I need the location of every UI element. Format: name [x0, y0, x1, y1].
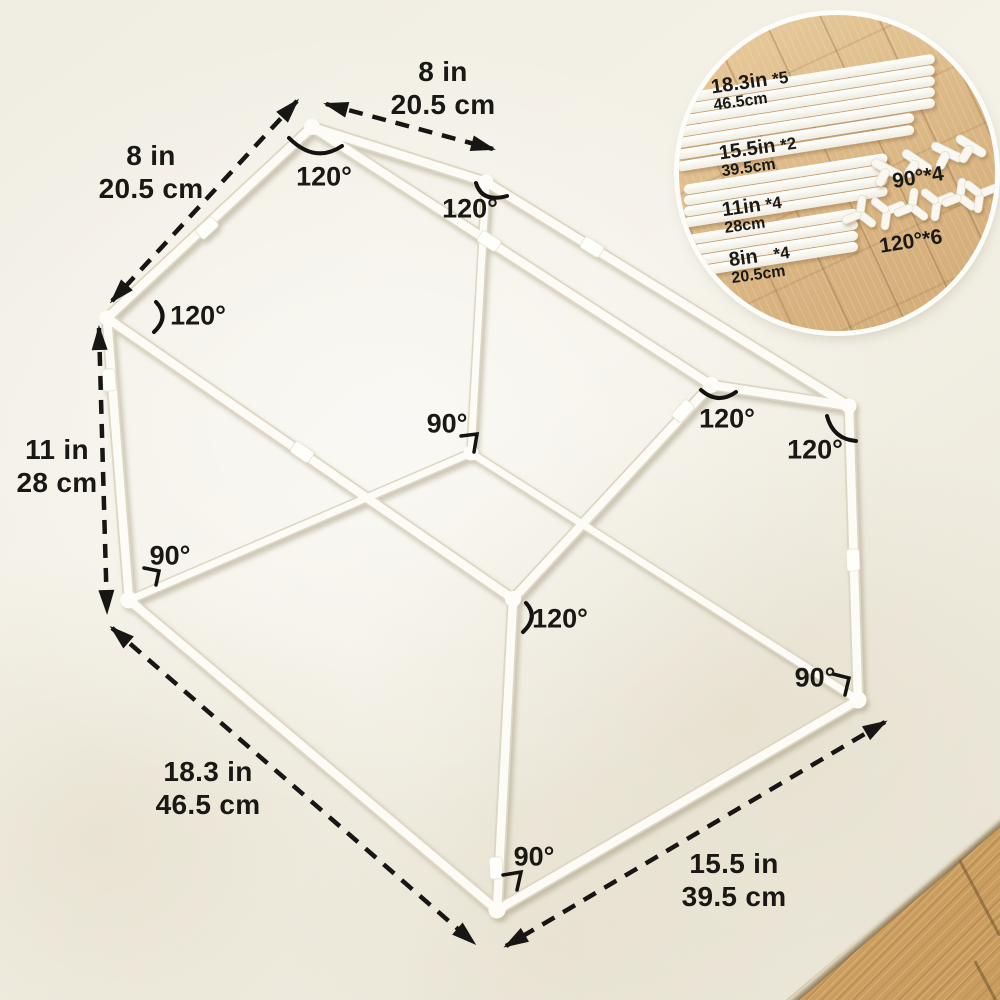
- dim-imperial: 15.5 in: [682, 847, 787, 880]
- part-qty: *4: [764, 193, 783, 214]
- dim-imperial: 8 in: [391, 55, 496, 88]
- angle-label-back-gable-peak: 120°: [296, 162, 352, 193]
- part-label-pipe-8: 8in*4 20.5cm: [728, 242, 794, 288]
- angle-label-front-eave: 120°: [532, 604, 588, 635]
- dim-wall-height: 11 in 28 cm: [17, 433, 98, 499]
- dim-imperial: 18.3 in: [156, 755, 261, 788]
- part-qty: *5: [771, 68, 790, 89]
- dim-metric: 39.5 cm: [682, 880, 787, 913]
- dim-metric: 20.5 cm: [99, 172, 204, 205]
- angle-label-back-floor-corner: 90°: [427, 409, 468, 440]
- product-diagram: 8 in 20.5 cm 8 in 20.5 cm 11 in 28 cm 18…: [0, 0, 1000, 1000]
- dim-base-width: 15.5 in 39.5 cm: [682, 847, 787, 913]
- dim-imperial: 8 in: [99, 139, 204, 172]
- part-qty: *2: [779, 134, 798, 155]
- dim-roof-left-slope: 8 in 20.5 cm: [99, 139, 204, 205]
- wye-connector-icon: [961, 170, 995, 216]
- part-qty: *4: [772, 243, 791, 264]
- angle-label-front-floor-corner: 90°: [514, 842, 555, 873]
- angle-label-right-floor-corner: 90°: [795, 663, 836, 694]
- angle-label-back-left-eave: 120°: [170, 301, 226, 332]
- angle-label-left-floor-corner: 90°: [150, 541, 191, 572]
- dim-roof-right-slope: 8 in 20.5 cm: [391, 55, 496, 121]
- angle-label-back-right-eave: 120°: [442, 194, 498, 225]
- dim-imperial: 11 in: [17, 433, 98, 466]
- dim-metric: 20.5 cm: [391, 88, 496, 121]
- dim-base-length: 18.3 in 46.5 cm: [156, 755, 261, 821]
- dim-metric: 28 cm: [17, 466, 98, 499]
- angle-label-right-eave: 120°: [787, 435, 843, 466]
- angle-label-front-gable-peak: 120°: [699, 404, 755, 435]
- dim-metric: 46.5 cm: [156, 788, 261, 821]
- parts-inset-photo: 18.3in*5 46.5cm 15.5in*2 39.5cm 11in*4 2…: [679, 15, 995, 331]
